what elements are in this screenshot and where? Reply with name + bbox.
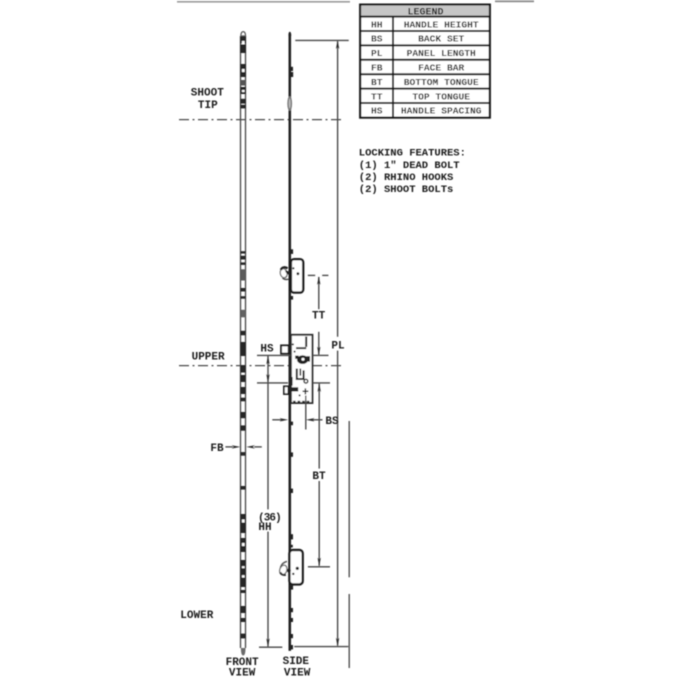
svg-text:(2) SHOOT BOLTs: (2) SHOOT BOLTs <box>359 184 454 196</box>
svg-text:TT: TT <box>312 311 326 323</box>
svg-text:HS: HS <box>371 106 383 117</box>
svg-text:PANEL LENGTH: PANEL LENGTH <box>407 48 476 59</box>
svg-text:TIP: TIP <box>198 100 218 112</box>
svg-text:HH: HH <box>258 522 271 534</box>
svg-text:(2) RHINO HOOKS: (2) RHINO HOOKS <box>359 172 454 184</box>
svg-text:HH: HH <box>371 19 383 30</box>
svg-text:BOTTOM TONGUE: BOTTOM TONGUE <box>404 77 479 88</box>
svg-text:(1) 1" DEAD BOLT: (1) 1" DEAD BOLT <box>359 160 460 172</box>
svg-text:PL: PL <box>371 48 383 59</box>
svg-text:VIEW: VIEW <box>229 667 256 679</box>
svg-text:HS: HS <box>260 343 274 355</box>
svg-text:UPPER: UPPER <box>192 351 225 363</box>
svg-text:FB: FB <box>371 63 383 74</box>
svg-text:PL: PL <box>331 340 345 352</box>
svg-text:HANDLE SPACING: HANDLE SPACING <box>401 106 482 117</box>
svg-text:FB: FB <box>210 443 224 455</box>
svg-text:SHOOT: SHOOT <box>191 88 224 100</box>
svg-text:TOP TONGUE: TOP TONGUE <box>412 91 470 102</box>
svg-text:BACK SET: BACK SET <box>418 34 464 45</box>
svg-text:BS: BS <box>371 34 383 45</box>
svg-text:LOWER: LOWER <box>180 610 213 622</box>
svg-text:BT: BT <box>312 471 326 483</box>
svg-text:LOCKING FEATURES:: LOCKING FEATURES: <box>359 148 466 160</box>
svg-text:TT: TT <box>371 91 383 102</box>
svg-text:LEGEND: LEGEND <box>407 7 443 18</box>
svg-text:BT: BT <box>371 77 383 88</box>
svg-text:SIDE: SIDE <box>283 656 310 668</box>
svg-text:VIEW: VIEW <box>284 667 311 679</box>
svg-text:BS: BS <box>325 416 339 428</box>
svg-text:FACE BAR: FACE BAR <box>418 63 464 74</box>
svg-text:HANDLE HEIGHT: HANDLE HEIGHT <box>404 19 479 30</box>
